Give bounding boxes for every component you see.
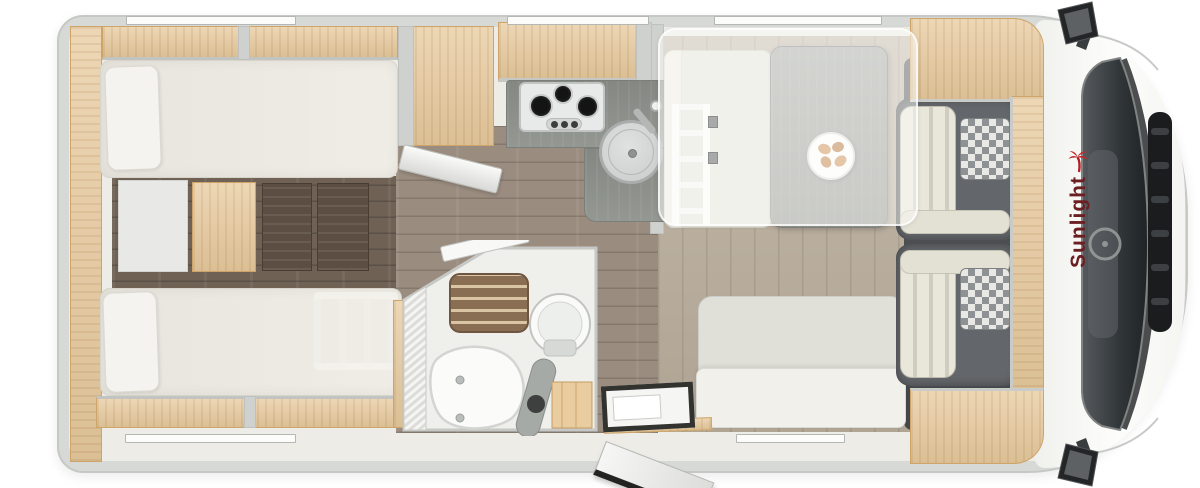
vanity-cabinet [552, 382, 592, 428]
entry-step-well [601, 382, 695, 433]
sink-drain [628, 149, 637, 158]
burner-right [578, 97, 597, 116]
wing-mirror-top [1058, 2, 1098, 50]
driver-seat [896, 244, 1018, 386]
bedroom-step-light [192, 182, 256, 272]
ladder-clip [708, 116, 718, 128]
hob-controls [546, 118, 582, 130]
bed-ladder [314, 292, 398, 370]
cabinet-divider [238, 26, 250, 60]
wing-mirror-bottom [1058, 438, 1098, 486]
bedroom-step-dark-1 [262, 183, 312, 271]
cab-arch-top [910, 18, 1044, 102]
window-top-kitchen [507, 16, 649, 25]
overhead-cabinet-kitchen [498, 22, 640, 82]
palm-tree-icon [1067, 148, 1091, 174]
drop-down-bed-overlay [658, 28, 918, 226]
brand-label: Sunlight [1067, 176, 1091, 268]
basin-drain [456, 376, 464, 384]
burner-left [531, 96, 551, 116]
ladder-clip [708, 152, 718, 164]
cabinet-divider [244, 396, 256, 428]
bedside-cabinet [118, 180, 188, 272]
window-bottom-rear [125, 434, 296, 443]
toilet-hinge [544, 340, 576, 356]
dinette-rear-bench-backrest [698, 296, 904, 374]
steering-hub [1102, 241, 1108, 247]
shower-slat-mat [450, 274, 528, 332]
washbasin [430, 347, 523, 429]
window-top-rear [126, 16, 296, 25]
toilet-lid [538, 302, 582, 346]
hob-knob [561, 121, 568, 128]
cab-front [1030, 0, 1200, 488]
seat-headrest-checkered [960, 118, 1010, 180]
window-bottom-dinette [736, 434, 845, 443]
motorhome-floor-plan: Sunlight [0, 0, 1200, 488]
overhead-cabinet-bedroom-top [102, 26, 398, 60]
basin-drain [456, 414, 464, 422]
seat-headrest-checkered [960, 268, 1010, 330]
hob-knob [551, 121, 558, 128]
drop-down-bed-ladder [672, 104, 710, 224]
wardrobe-edge [398, 26, 414, 146]
shower-screen-wall [404, 287, 426, 430]
gas-hob [519, 82, 605, 132]
bedroom-step-dark-2 [317, 183, 369, 271]
dinette-rear-bench-seat [696, 368, 906, 428]
hob-knob [571, 121, 578, 128]
burner-middle [555, 86, 571, 102]
pillow-top-bed [104, 65, 162, 171]
cabinet-divider [636, 22, 652, 86]
bathroom [400, 240, 600, 436]
pillow-bottom-bed [102, 291, 159, 393]
window-top-dinette [714, 16, 882, 25]
brand-logo: Sunlight [1062, 148, 1096, 320]
cab-arch-bottom [910, 388, 1044, 464]
overhead-cabinet-bedroom-bottom [96, 396, 444, 428]
screen-knob [527, 395, 545, 413]
